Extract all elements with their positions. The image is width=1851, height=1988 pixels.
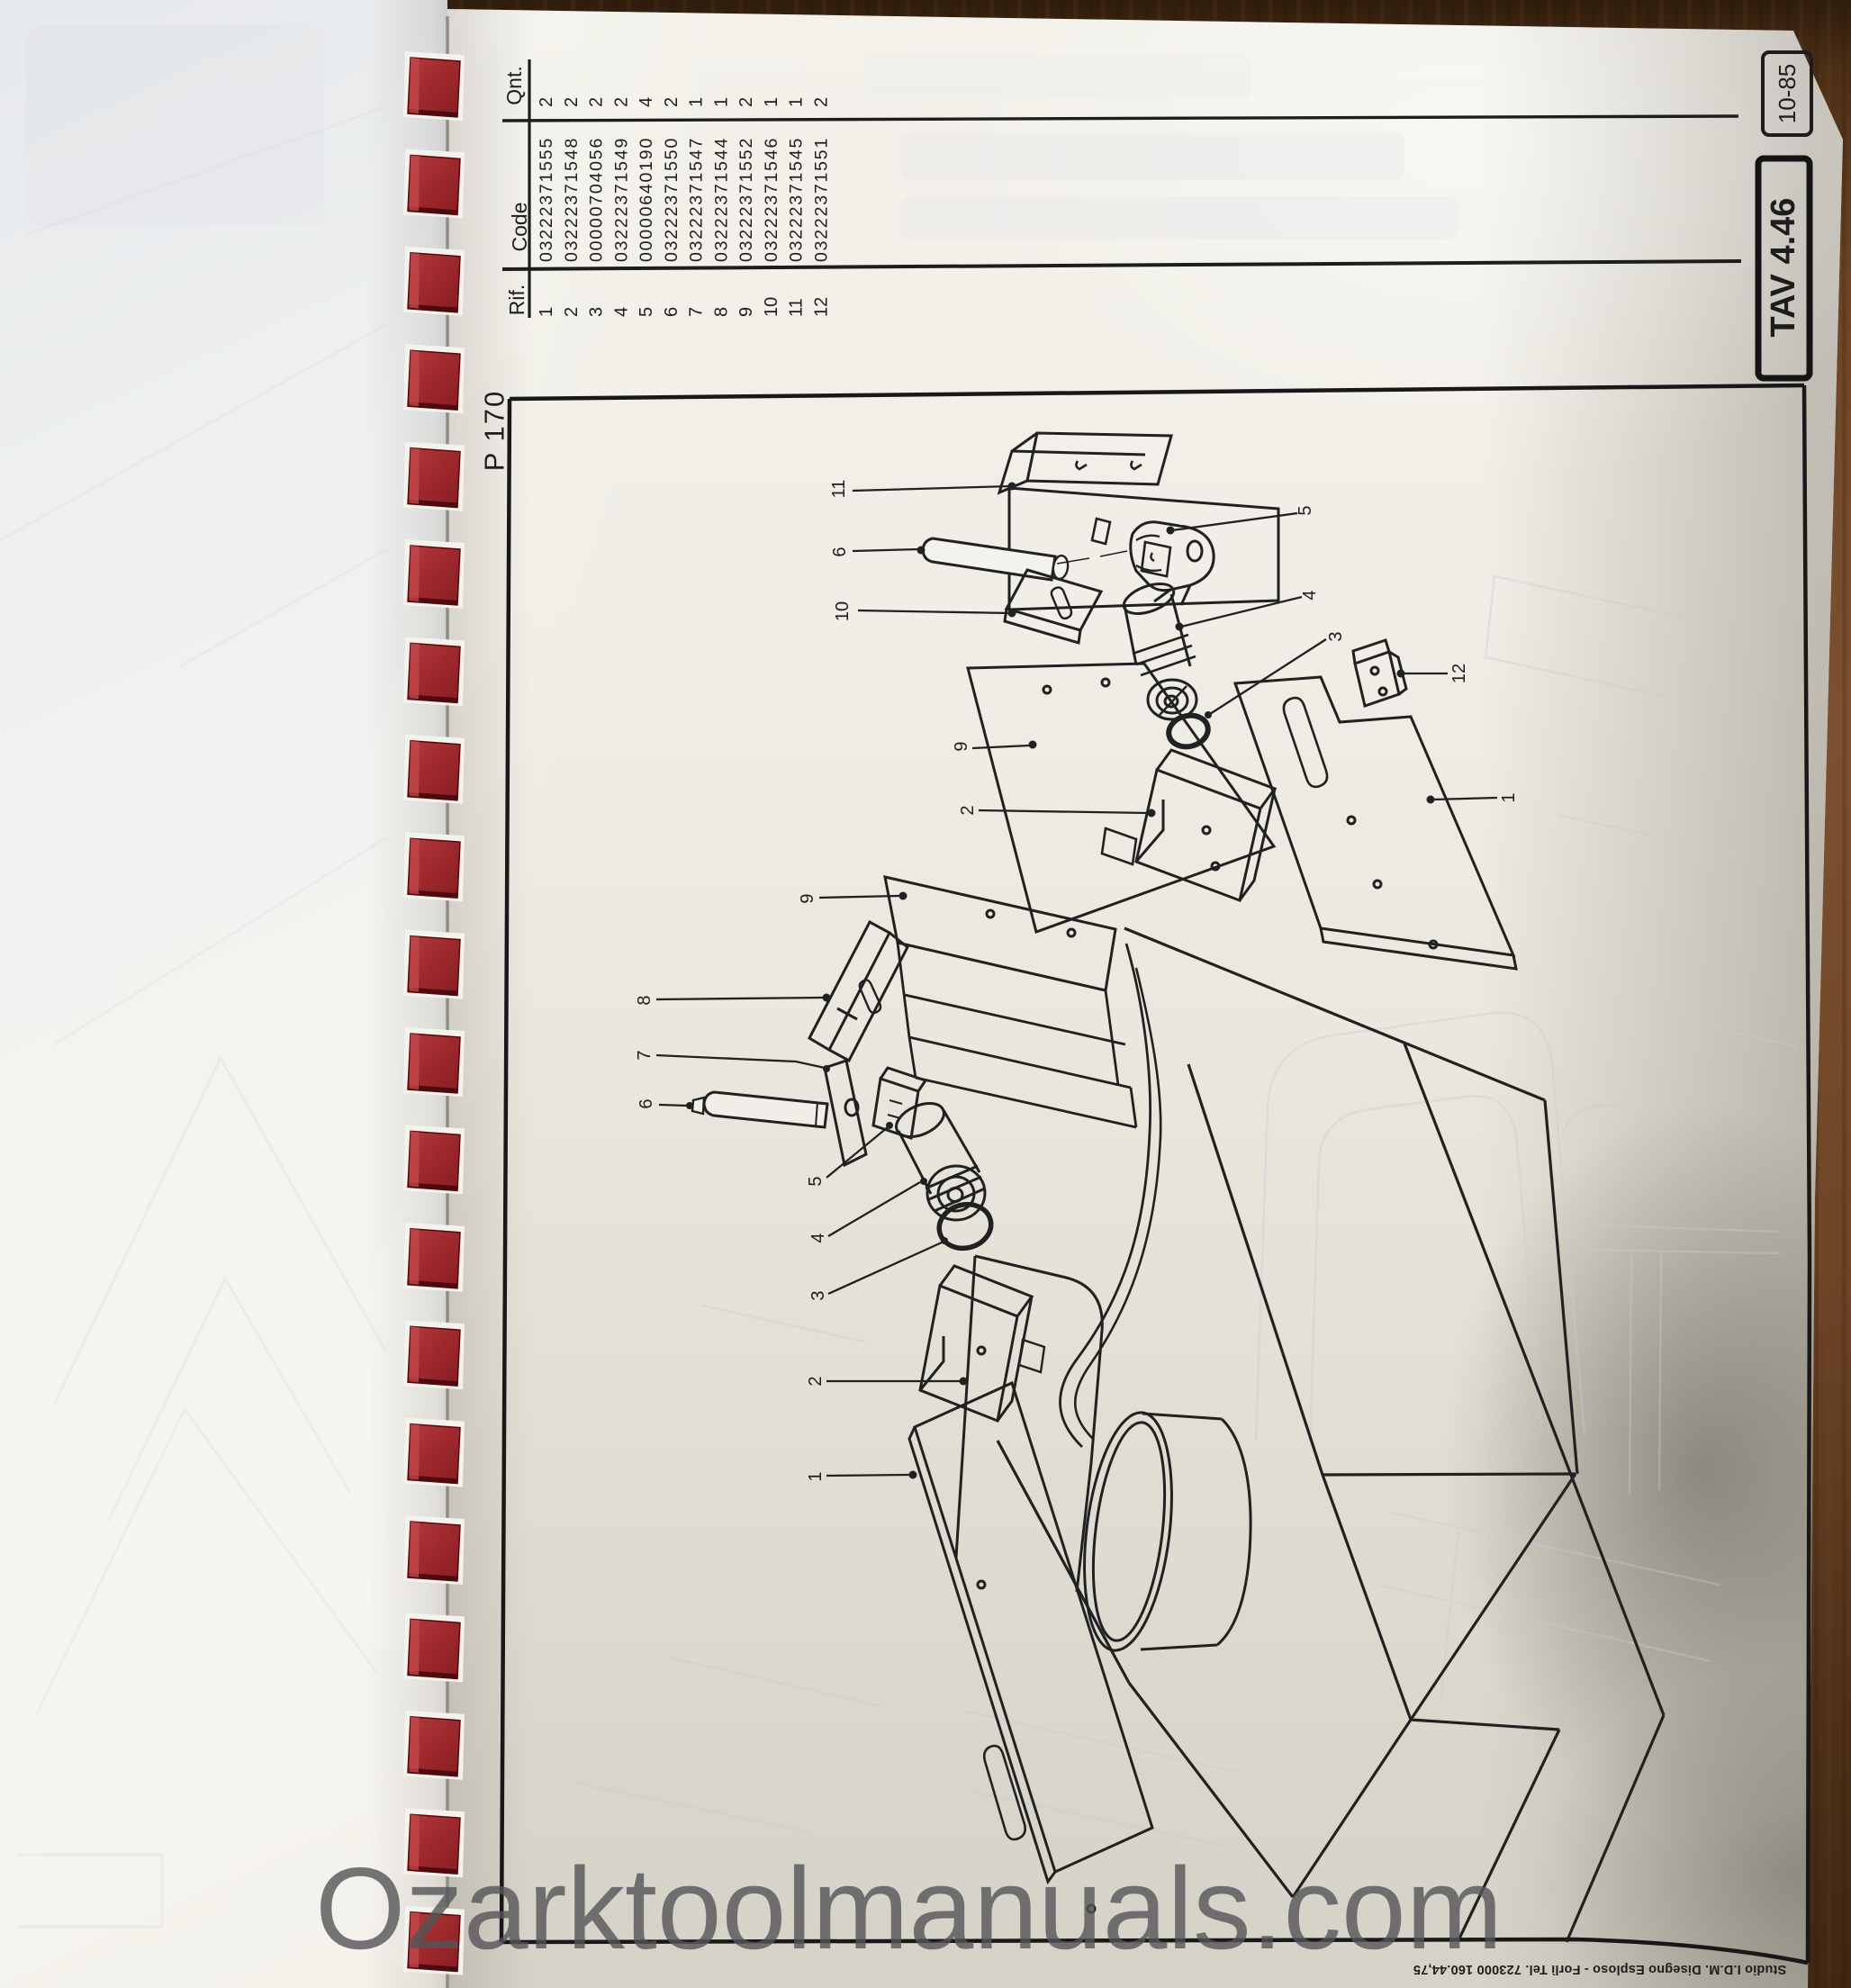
svg-text:8: 8 <box>711 307 731 317</box>
svg-text:7: 7 <box>687 307 707 317</box>
svg-text:2: 2 <box>662 97 682 107</box>
svg-text:12: 12 <box>811 297 831 317</box>
svg-text:03222371547: 03222371547 <box>687 137 707 262</box>
svg-text:TAV 4.46: TAV 4.46 <box>1765 198 1802 338</box>
svg-text:10: 10 <box>833 601 853 621</box>
svg-text:3: 3 <box>808 1290 828 1300</box>
svg-text:9: 9 <box>952 741 971 751</box>
svg-text:1: 1 <box>687 97 707 107</box>
svg-text:4: 4 <box>1300 590 1320 600</box>
svg-text:00000640190: 00000640190 <box>637 137 656 262</box>
svg-text:2: 2 <box>562 97 582 107</box>
svg-text:3: 3 <box>587 307 607 317</box>
svg-text:4: 4 <box>637 97 656 107</box>
svg-text:9: 9 <box>736 307 756 317</box>
svg-text:03222371546: 03222371546 <box>762 137 781 262</box>
svg-text:2: 2 <box>587 97 607 107</box>
svg-text:Code: Code <box>508 203 531 252</box>
svg-text:2: 2 <box>537 97 556 107</box>
svg-text:03222371545: 03222371545 <box>787 137 807 262</box>
svg-text:10: 10 <box>762 297 781 317</box>
svg-text:03222371549: 03222371549 <box>611 137 631 262</box>
svg-text:00000704056: 00000704056 <box>587 137 607 262</box>
svg-text:2: 2 <box>611 97 631 107</box>
svg-text:4: 4 <box>808 1233 828 1242</box>
svg-text:1: 1 <box>1499 792 1519 802</box>
svg-text:6: 6 <box>637 1098 656 1108</box>
svg-text:1: 1 <box>762 97 781 107</box>
svg-text:11: 11 <box>787 298 807 317</box>
svg-text:5: 5 <box>637 307 656 317</box>
svg-text:6: 6 <box>830 547 850 556</box>
svg-text:1: 1 <box>787 97 807 107</box>
svg-text:2: 2 <box>806 1376 826 1386</box>
svg-text:1: 1 <box>537 307 556 317</box>
svg-text:03222371548: 03222371548 <box>562 137 582 262</box>
svg-text:03222371555: 03222371555 <box>537 137 556 262</box>
svg-text:03222371550: 03222371550 <box>662 137 682 262</box>
svg-text:5: 5 <box>806 1176 826 1186</box>
svg-text:P 170: P 170 <box>479 390 510 471</box>
svg-text:7: 7 <box>635 1050 655 1060</box>
svg-text:2: 2 <box>736 97 756 107</box>
svg-text:1: 1 <box>806 1471 826 1481</box>
svg-text:4: 4 <box>611 307 631 317</box>
svg-text:2: 2 <box>811 97 831 107</box>
svg-text:1: 1 <box>711 97 731 107</box>
svg-text:3: 3 <box>1326 631 1346 641</box>
svg-text:12: 12 <box>1449 664 1469 683</box>
svg-text:Rif.: Rif. <box>505 285 528 316</box>
svg-text:10-85: 10-85 <box>1774 64 1801 124</box>
svg-text:Qnt.: Qnt. <box>502 66 526 104</box>
svg-text:9: 9 <box>798 893 817 903</box>
svg-text:6: 6 <box>662 307 682 317</box>
svg-text:03222371551: 03222371551 <box>811 137 831 262</box>
svg-text:03222371552: 03222371552 <box>736 137 756 262</box>
svg-text:2: 2 <box>958 805 978 815</box>
svg-text:8: 8 <box>635 995 655 1005</box>
svg-text:5: 5 <box>1296 505 1315 515</box>
svg-text:11: 11 <box>829 480 849 499</box>
svg-text:2: 2 <box>562 307 582 317</box>
svg-text:03222371544: 03222371544 <box>711 137 731 262</box>
